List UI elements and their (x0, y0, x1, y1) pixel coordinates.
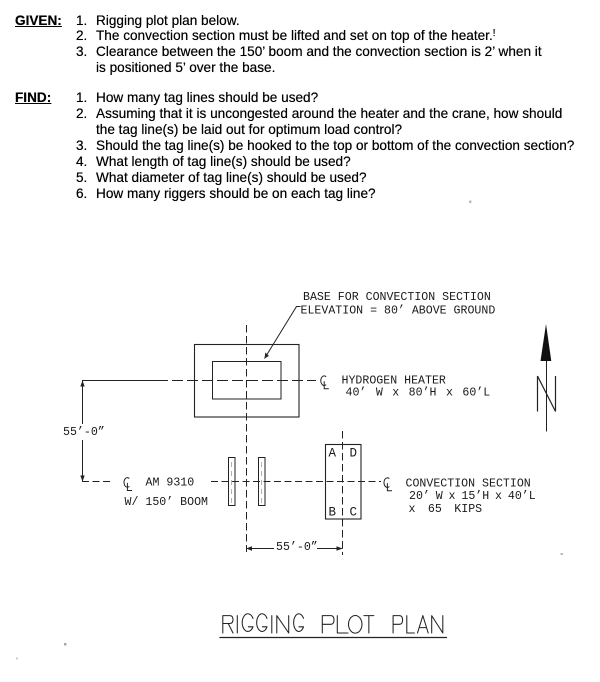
svg-text:A: A (329, 447, 337, 461)
svg-text:CONVECTION SECTION: CONVECTION SECTION (406, 477, 531, 490)
svg-text:C: C (350, 506, 358, 520)
svg-text:AM 9310: AM 9310 (146, 477, 195, 490)
svg-text:HYDROGEN HEATER: HYDROGEN HEATER (342, 374, 446, 387)
svg-text:B: B (329, 506, 337, 520)
svg-text:20’ W x 15’H x 40’L: 20’ W x 15’H x 40’L (409, 490, 536, 503)
svg-text:x 65 KIPS: x 65 KIPS (409, 503, 483, 516)
svg-text:ELEVATION = 80’ ABOVE GROUND: ELEVATION = 80’ ABOVE GROUND (301, 305, 496, 318)
svg-text:BASE FOR CONVECTION SECTION: BASE FOR CONVECTION SECTION (303, 291, 491, 304)
svg-text:D: D (350, 447, 358, 461)
svg-text:55’-0”: 55’-0” (276, 541, 318, 554)
svg-text:40’ W x 80’H x 60’L: 40’ W x 80’H x 60’L (346, 387, 491, 400)
svg-text:W/ 150’ BOOM: W/ 150’ BOOM (125, 496, 209, 509)
svg-text:55’-0”: 55’-0” (63, 426, 105, 439)
